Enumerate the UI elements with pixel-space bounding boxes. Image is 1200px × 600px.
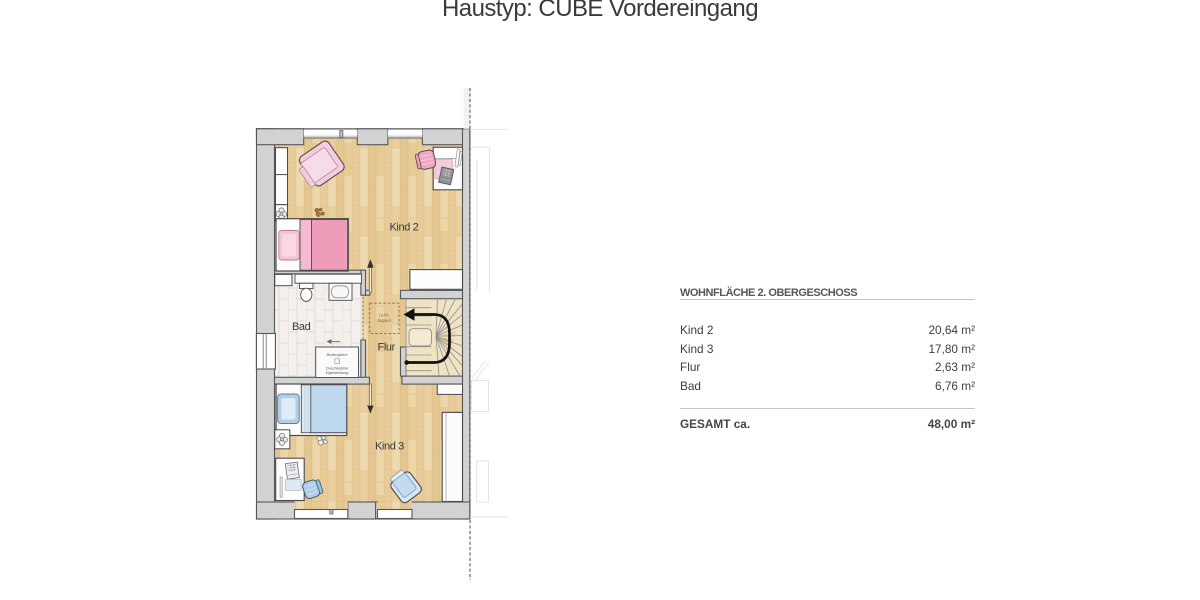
svg-text:Bodengleich: Bodengleich bbox=[327, 353, 348, 357]
svg-text:Duschkabine: Duschkabine bbox=[326, 367, 348, 371]
svg-text:Kind 3: Kind 3 bbox=[375, 441, 404, 453]
svg-text:Flur: Flur bbox=[378, 342, 396, 354]
svg-text:Licht-: Licht- bbox=[379, 313, 390, 318]
svg-text:Eigenleistung: Eigenleistung bbox=[326, 371, 350, 375]
svg-text:Bad: Bad bbox=[292, 321, 311, 333]
svg-text:kuppel: kuppel bbox=[378, 318, 391, 323]
svg-text:Kind 2: Kind 2 bbox=[390, 222, 419, 234]
